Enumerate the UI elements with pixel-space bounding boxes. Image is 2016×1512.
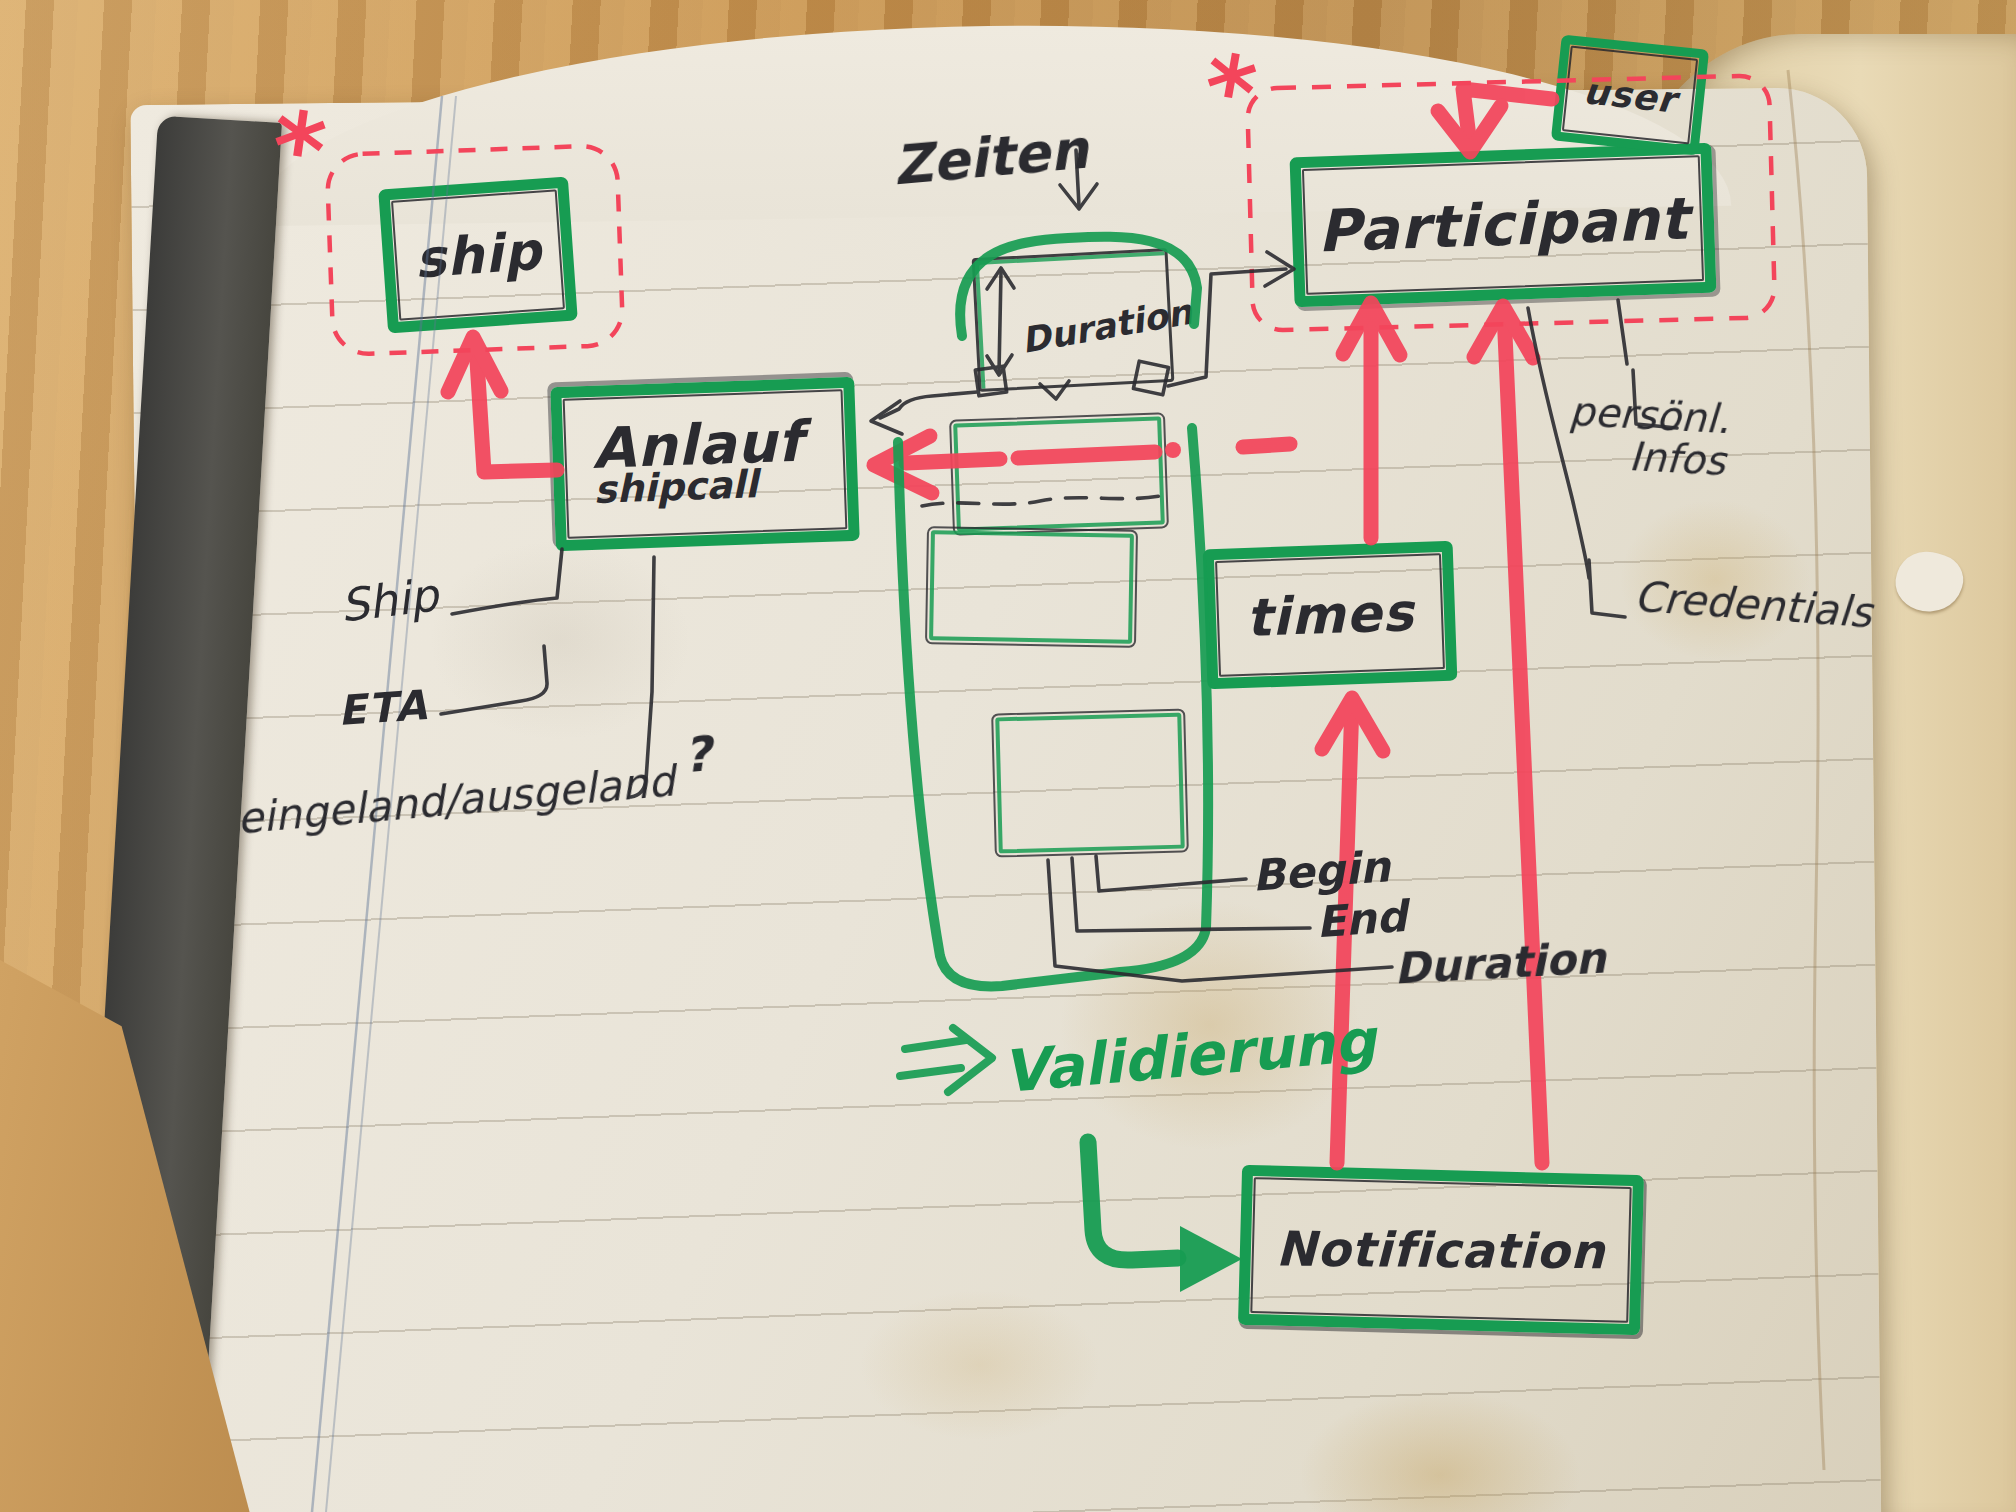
notification-box-label: Notification xyxy=(1276,1221,1606,1280)
field-end: End xyxy=(1314,891,1408,947)
field-begin: Begin xyxy=(1250,841,1391,901)
zeiten-list-item-1 xyxy=(953,416,1165,531)
node-notification: Notification xyxy=(1238,1165,1644,1335)
node-anlauf: Anlauf shipcall xyxy=(550,377,860,552)
zeiten-list-item-2 xyxy=(929,530,1134,644)
field-personal-infos-line2: Infos xyxy=(1628,433,1729,484)
participant-box-label: Participant xyxy=(1316,185,1689,266)
node-participant: Participant xyxy=(1290,143,1717,308)
user-box-label: user xyxy=(1581,70,1678,121)
field-inout-question: ? xyxy=(681,725,714,783)
field-personal-infos: persönl. Infos xyxy=(1566,388,1731,484)
node-user: user xyxy=(1551,35,1709,156)
times-box-label: times xyxy=(1245,582,1415,648)
node-duration: Duration xyxy=(972,248,1175,392)
ship-box-label: ship xyxy=(413,221,544,290)
field-eta: ETA xyxy=(336,681,430,735)
notebook-photo: ship Anlauf shipcall Duration Participan… xyxy=(0,0,2016,1512)
node-ship: ship xyxy=(378,177,578,334)
zeiten-list-item-3 xyxy=(995,713,1184,854)
node-times: times xyxy=(1203,541,1458,690)
asterisk-participant: * xyxy=(1201,68,1257,115)
anlauf-box-sublabel: shipcall xyxy=(593,462,759,512)
asterisk-ship: * xyxy=(269,127,326,174)
duration-box-label: Duration xyxy=(1018,292,1195,361)
